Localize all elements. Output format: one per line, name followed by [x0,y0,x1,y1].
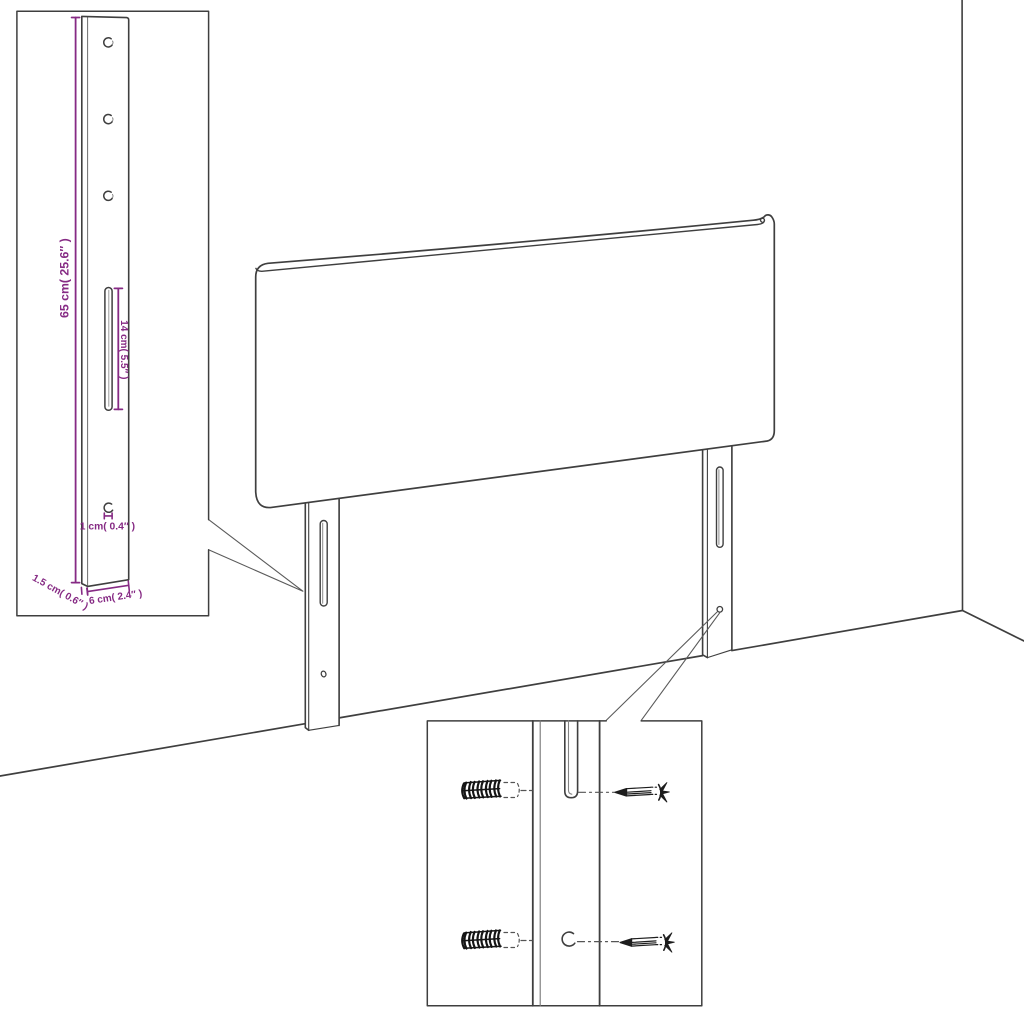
svg-text:65 cm( 25.6″ ): 65 cm( 25.6″ ) [57,238,71,318]
svg-text:1 cm( 0.4″ ): 1 cm( 0.4″ ) [80,522,135,533]
svg-text:1.5 cm( 0.6″ ): 1.5 cm( 0.6″ ) [30,573,90,613]
svg-text:14 cm( 5.5″ ): 14 cm( 5.5″ ) [118,320,129,379]
svg-text:6 cm( 2.4″ ): 6 cm( 2.4″ ) [88,588,143,607]
